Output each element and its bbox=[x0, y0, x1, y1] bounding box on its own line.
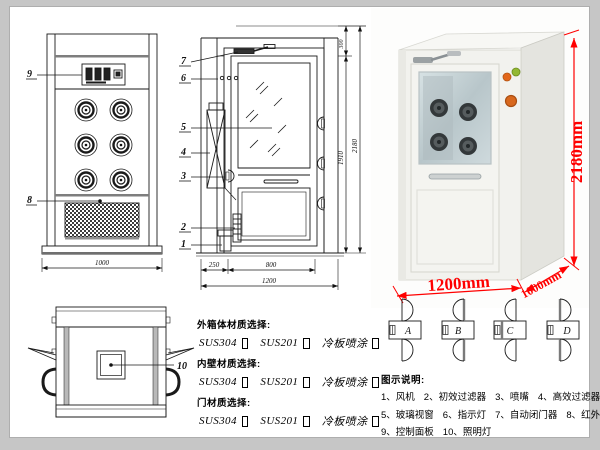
door-config-label: C bbox=[507, 326, 514, 337]
legend-item: 2、初效过滤器 bbox=[424, 389, 486, 403]
legend-item: 3、喷嘴 bbox=[495, 389, 529, 403]
material-option: SUS201 bbox=[260, 337, 298, 349]
material-checkbox[interactable] bbox=[372, 377, 379, 388]
indicator-lights bbox=[220, 76, 237, 79]
legend-item: 5、玻璃视窗 bbox=[381, 407, 434, 421]
part-label-3: 3 bbox=[180, 171, 186, 182]
dim-1200: 1200 bbox=[262, 277, 277, 285]
front-view-drawing: 1000 9 8 bbox=[22, 24, 177, 279]
part-label-2: 2 bbox=[180, 222, 186, 233]
door-config-label: D bbox=[562, 326, 571, 337]
part-label-9: 9 bbox=[27, 69, 32, 80]
photo-door-handle bbox=[429, 174, 481, 179]
material-option: SUS201 bbox=[260, 415, 298, 427]
photo-dim-height: 2180mm bbox=[567, 121, 586, 183]
legend-item: 7、自动闭门器 bbox=[495, 407, 557, 421]
material-option: 冷板喷涂 bbox=[322, 374, 368, 390]
legend-section: 图示说明: 1、风机 2、初效过滤器 3、喷嘴 4、高效过滤器 5、玻璃视窗 6… bbox=[381, 372, 589, 442]
material-options-row: SUS304 SUS201 冷板喷涂 bbox=[199, 374, 379, 390]
material-checkbox[interactable] bbox=[303, 416, 310, 427]
door-config-b: B bbox=[436, 295, 480, 365]
material-option: SUS201 bbox=[260, 376, 298, 388]
legend-item: 8、红外线感应器 bbox=[566, 407, 600, 421]
part-label-8: 8 bbox=[27, 195, 32, 206]
part-label-1: 1 bbox=[181, 239, 186, 250]
material-option: SUS304 bbox=[199, 376, 237, 388]
dim-2180: 2180 bbox=[351, 139, 359, 154]
door-config-label: A bbox=[404, 326, 412, 337]
spec-sheet-page: 1000 9 8 bbox=[0, 0, 600, 450]
front-width-dim: 1000 bbox=[95, 259, 110, 267]
indicator-light-red bbox=[503, 73, 511, 81]
material-checkbox[interactable] bbox=[303, 377, 310, 388]
material-option: SUS304 bbox=[199, 415, 237, 427]
part-label-7: 7 bbox=[181, 56, 187, 67]
material-options-row: SUS304 SUS201 冷板喷涂 bbox=[199, 413, 379, 429]
part-label-5: 5 bbox=[181, 122, 186, 133]
dim-250: 250 bbox=[209, 261, 220, 269]
door-config-diagrams: A B C bbox=[383, 295, 585, 367]
part-label-10: 10 bbox=[177, 361, 187, 372]
material-checkbox[interactable] bbox=[372, 416, 379, 427]
dim-300: 300 bbox=[339, 40, 345, 50]
legend-item: 6、指示灯 bbox=[443, 407, 486, 421]
material-checkbox[interactable] bbox=[372, 338, 379, 349]
part-label-4: 4 bbox=[180, 147, 186, 158]
legend-item: 9、控制面板 bbox=[381, 424, 434, 438]
material-group-title: 外箱体材质选择: bbox=[197, 317, 379, 331]
right-wall-nozzles bbox=[318, 117, 325, 210]
legend-title: 图示说明: bbox=[381, 372, 589, 386]
emergency-button bbox=[506, 96, 517, 107]
door-closer bbox=[234, 45, 275, 54]
legend-row: 5、玻璃视窗 6、指示灯 7、自动闭门器 8、红外线感应器 bbox=[381, 407, 589, 421]
material-option: SUS304 bbox=[199, 337, 237, 349]
material-selection-section: 外箱体材质选择: SUS304 SUS201 冷板喷涂 内壁材质选择: SUS3… bbox=[197, 317, 379, 434]
door-config-label: B bbox=[455, 326, 461, 337]
door-config-d: D bbox=[541, 295, 585, 365]
material-checkbox[interactable] bbox=[242, 416, 249, 427]
material-options-row: SUS304 SUS201 冷板喷涂 bbox=[199, 335, 379, 351]
material-checkbox[interactable] bbox=[242, 338, 249, 349]
legend-item: 10、照明灯 bbox=[443, 424, 492, 438]
return-grille bbox=[65, 203, 139, 237]
door-config-a: A bbox=[383, 295, 427, 365]
legend-item: 1、风机 bbox=[381, 389, 415, 403]
dim-1910: 1910 bbox=[337, 151, 345, 166]
dim-800: 800 bbox=[266, 261, 277, 269]
legend-row: 9、控制面板 10、照明灯 bbox=[381, 424, 589, 438]
door-config-c: C bbox=[488, 295, 532, 365]
top-view-drawing: 10 bbox=[24, 293, 199, 433]
material-checkbox[interactable] bbox=[303, 338, 310, 349]
glass-hatching bbox=[246, 82, 286, 156]
cabinet-side-face bbox=[521, 32, 564, 280]
material-option: 冷板喷涂 bbox=[322, 335, 368, 351]
hepa-filter bbox=[207, 103, 225, 188]
part-label-6: 6 bbox=[181, 73, 186, 84]
legend-row: 1、风机 2、初效过滤器 3、喷嘴 4、高效过滤器 bbox=[381, 389, 589, 403]
product-photo: 2180mm 1200mm 1000mm bbox=[371, 8, 589, 308]
material-option: 冷板喷涂 bbox=[322, 413, 368, 429]
material-group-title: 门材质选择: bbox=[197, 395, 379, 409]
material-group-title: 内壁材质选择: bbox=[197, 356, 379, 370]
legend-item: 4、高效过滤器 bbox=[538, 389, 600, 403]
side-view-drawing: 7 6 5 4 3 2 1 300 1910 2180 250 800 1200 bbox=[176, 18, 381, 308]
indicator-light-green bbox=[512, 68, 520, 76]
material-checkbox[interactable] bbox=[242, 377, 249, 388]
